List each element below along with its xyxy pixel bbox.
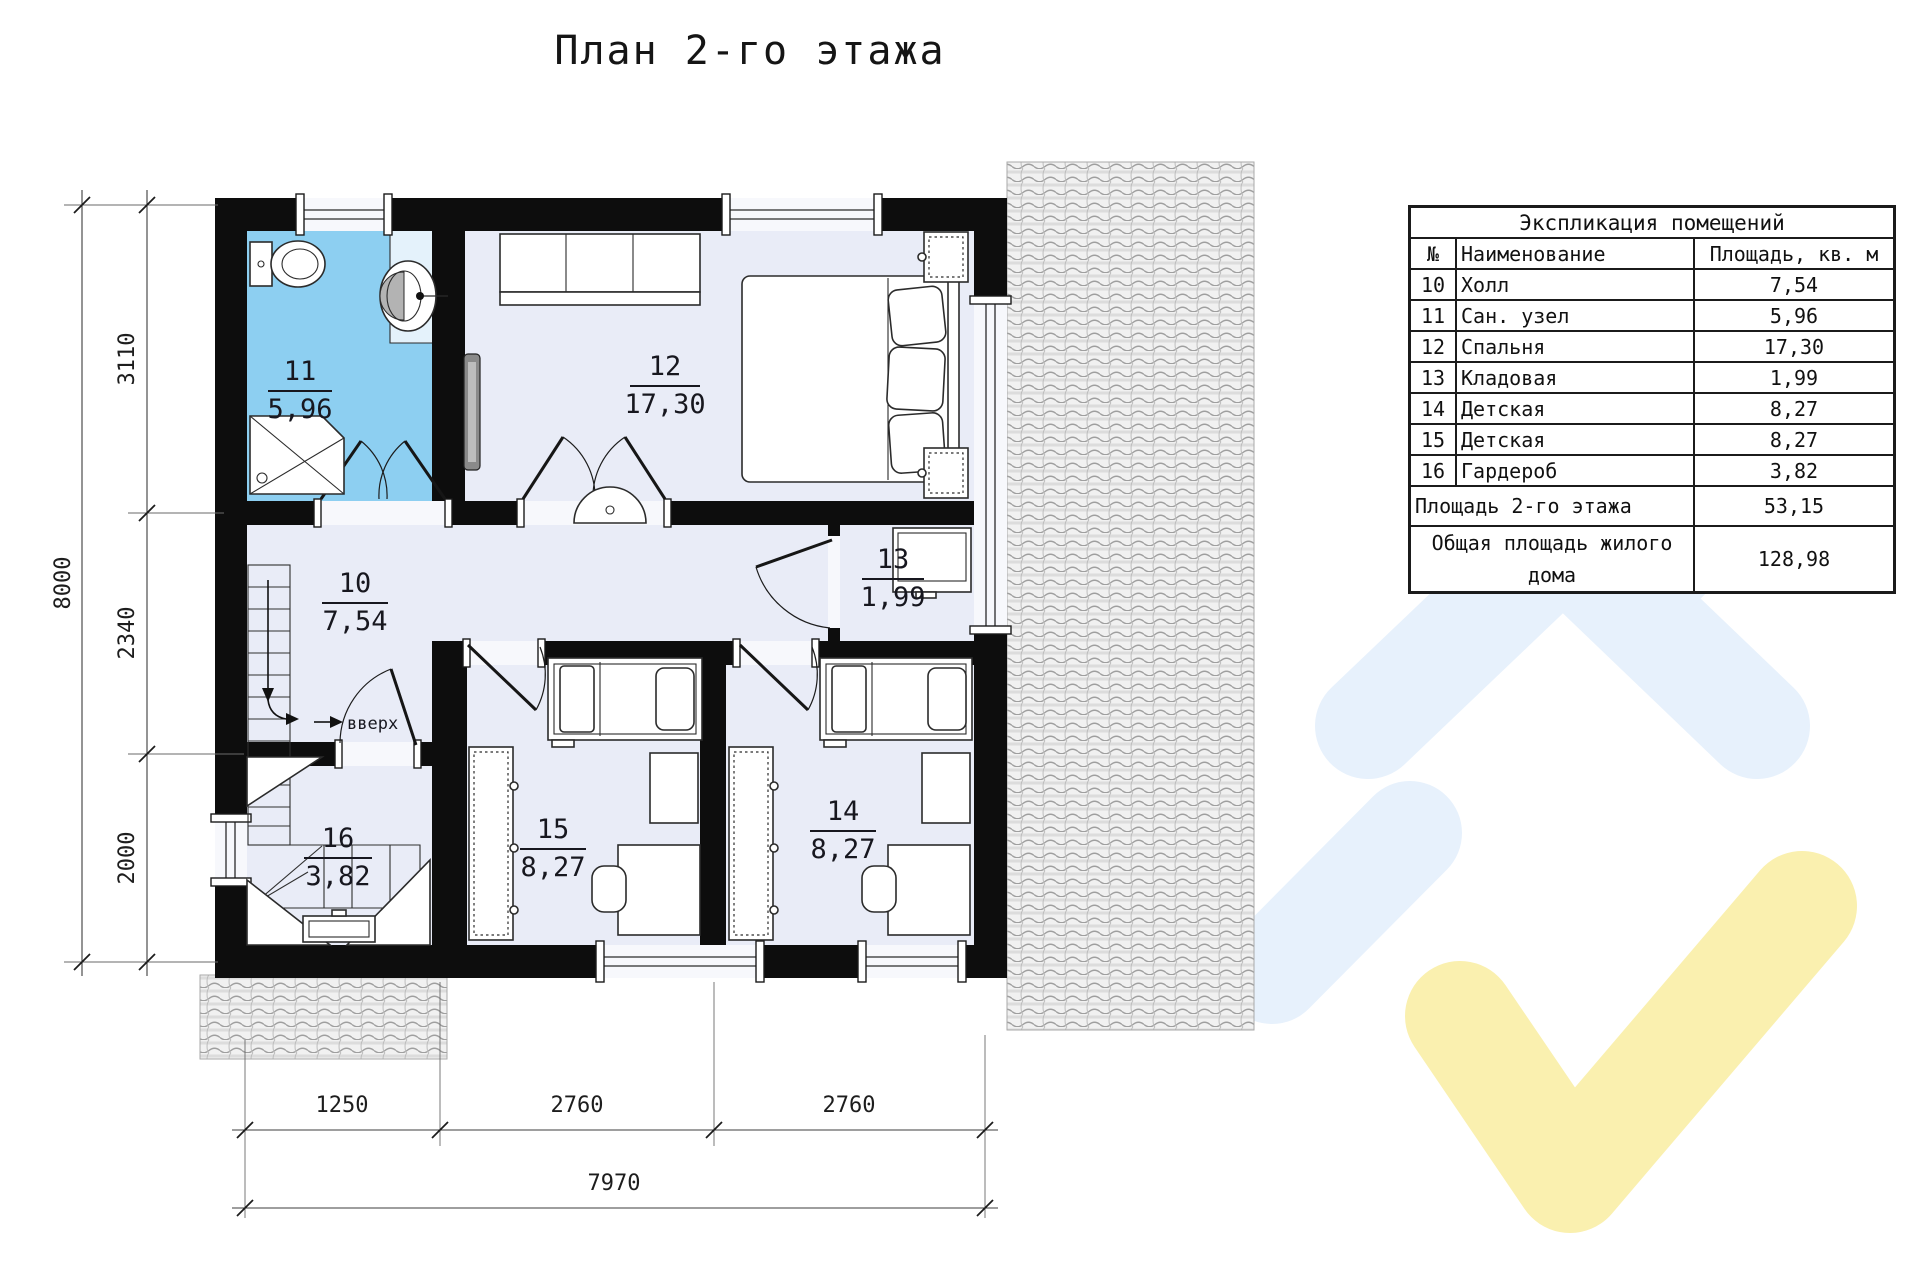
house-total-label: Общая площадь жилого дома (1410, 526, 1695, 593)
row-area: 3,82 (1694, 455, 1895, 486)
svg-text:15: 15 (537, 814, 570, 845)
row-area: 7,54 (1694, 269, 1895, 300)
table-row: 16 Гардероб 3,82 (1410, 455, 1895, 486)
side-table-icon (650, 753, 698, 823)
row-area: 5,96 (1694, 300, 1895, 331)
row-num: 15 (1410, 424, 1457, 455)
roof-tiles-bottom-left (200, 975, 447, 1059)
row-area: 17,30 (1694, 331, 1895, 362)
row-area: 8,27 (1694, 393, 1895, 424)
col-header-name: Наименование (1456, 238, 1694, 269)
window-top-room11 (296, 194, 392, 235)
table-row: 12 Спальня 17,30 (1410, 331, 1895, 362)
svg-text:1250: 1250 (316, 1093, 369, 1118)
floor-total-row: Площадь 2-го этажа 53,15 (1410, 486, 1895, 526)
table-row: 14 Детская 8,27 (1410, 393, 1895, 424)
floor-total-value: 53,15 (1694, 486, 1895, 526)
logo-checkmark-icon (1460, 906, 1802, 1178)
wardrobe-icon (500, 234, 700, 305)
row-area: 8,27 (1694, 424, 1895, 455)
svg-text:2760: 2760 (823, 1093, 876, 1118)
svg-text:11: 11 (284, 356, 317, 387)
single-bed-icon (548, 658, 702, 747)
col-header-area: Площадь, кв. м (1694, 238, 1895, 269)
roof-tiles-right (1007, 162, 1254, 1030)
wardrobe-tall-icon (469, 747, 518, 940)
row-num: 12 (1410, 331, 1457, 362)
legend-title: Экспликация помещений (1410, 207, 1895, 239)
row-name: Спальня (1456, 331, 1694, 362)
svg-text:10: 10 (339, 568, 372, 599)
svg-text:17,30: 17,30 (624, 389, 705, 420)
side-table-icon (922, 753, 970, 823)
svg-text:3110: 3110 (115, 333, 140, 386)
wardrobe-tall-icon (729, 747, 778, 940)
legend-title-row: Экспликация помещений (1410, 207, 1895, 239)
tv-icon (464, 354, 480, 470)
row-num: 11 (1410, 300, 1457, 331)
floor-plan-drawing: вверх (0, 0, 1920, 1263)
nightstand-icon (918, 232, 968, 282)
table-row: 10 Холл 7,54 (1410, 269, 1895, 300)
logo-house-wall-icon (1272, 833, 1410, 972)
window-bottom-room14 (858, 941, 966, 982)
floor-total-label: Площадь 2-го этажа (1410, 486, 1695, 526)
row-name: Детская (1456, 393, 1694, 424)
logo-watermark (1272, 540, 1802, 1178)
row-area: 1,99 (1694, 362, 1895, 393)
row-name: Гардероб (1456, 455, 1694, 486)
svg-text:3,82: 3,82 (305, 861, 370, 892)
row-name: Холл (1456, 269, 1694, 300)
table-row: 11 Сан. узел 5,96 (1410, 300, 1895, 331)
house-total-value: 128,98 (1694, 526, 1895, 593)
drawing-sheet: План 2-го этажа (0, 0, 1920, 1263)
stairs-up-label: вверх (347, 714, 398, 734)
svg-text:5,96: 5,96 (267, 394, 332, 425)
svg-text:8,27: 8,27 (520, 852, 585, 883)
row-num: 10 (1410, 269, 1457, 300)
table-row: 13 Кладовая 1,99 (1410, 362, 1895, 393)
house-total-row: Общая площадь жилого дома 128,98 (1410, 526, 1895, 593)
row-name: Кладовая (1456, 362, 1694, 393)
svg-text:2760: 2760 (551, 1093, 604, 1118)
window-bottom-room15 (596, 941, 764, 982)
window-right-room12 (970, 296, 1011, 634)
row-num: 14 (1410, 393, 1457, 424)
row-name: Сан. узел (1456, 300, 1694, 331)
row-num: 13 (1410, 362, 1457, 393)
svg-text:13: 13 (877, 544, 910, 575)
svg-text:2000: 2000 (115, 832, 140, 885)
svg-text:7,54: 7,54 (322, 606, 387, 637)
window-top-room12 (722, 194, 882, 235)
svg-text:1,99: 1,99 (860, 582, 925, 613)
svg-text:16: 16 (322, 823, 355, 854)
svg-text:14: 14 (827, 796, 860, 827)
col-header-num: № (1410, 238, 1457, 269)
row-num: 16 (1410, 455, 1457, 486)
toilet-icon (250, 241, 325, 287)
legend-header-row: № Наименование Площадь, кв. м (1410, 238, 1895, 269)
single-bed-icon (820, 658, 972, 747)
nightstand-icon (918, 448, 968, 498)
row-name: Детская (1456, 424, 1694, 455)
window-left-room16 (211, 814, 251, 886)
svg-text:12: 12 (649, 351, 682, 382)
svg-text:8000: 8000 (51, 557, 76, 610)
svg-text:7970: 7970 (588, 1171, 641, 1196)
shower-icon (250, 416, 344, 494)
svg-text:8,27: 8,27 (810, 834, 875, 865)
table-row: 15 Детская 8,27 (1410, 424, 1895, 455)
room-legend-table: Экспликация помещений № Наименование Пло… (1408, 205, 1896, 594)
svg-text:2340: 2340 (115, 607, 140, 660)
